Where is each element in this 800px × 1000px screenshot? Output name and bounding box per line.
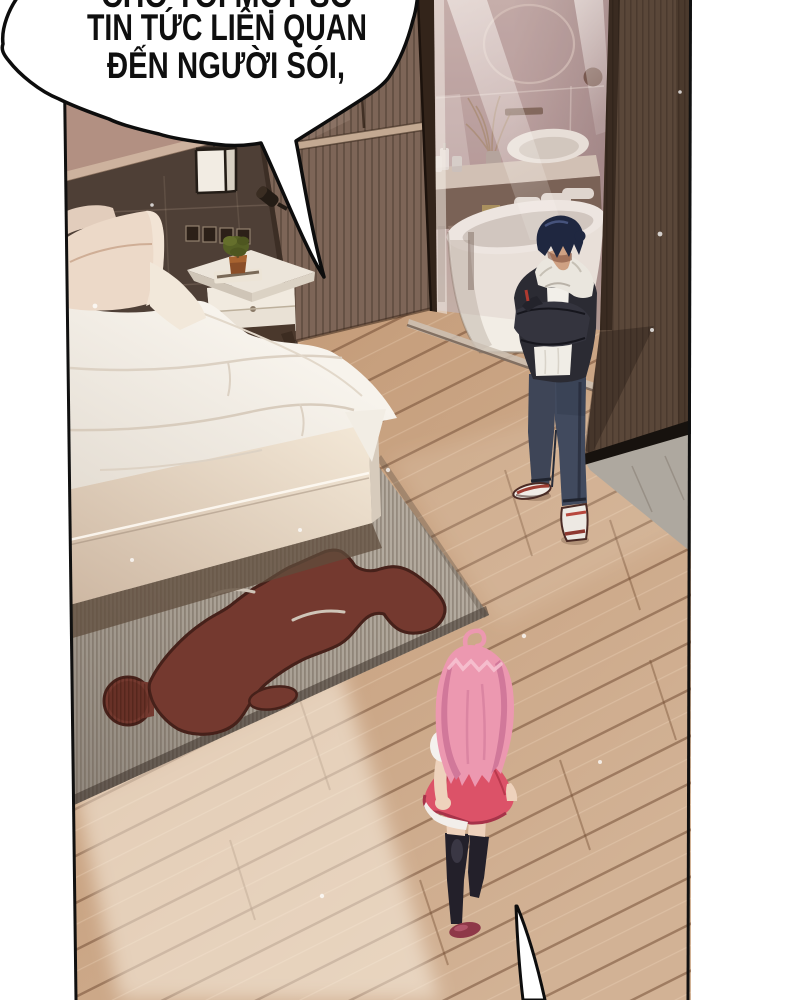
svg-text:TIN TỨC LIÊN QUAN: TIN TỨC LIÊN QUAN (87, 6, 367, 48)
svg-text:ĐẾN NGƯỜI SÓI,: ĐẾN NGƯỜI SÓI, (107, 44, 345, 86)
